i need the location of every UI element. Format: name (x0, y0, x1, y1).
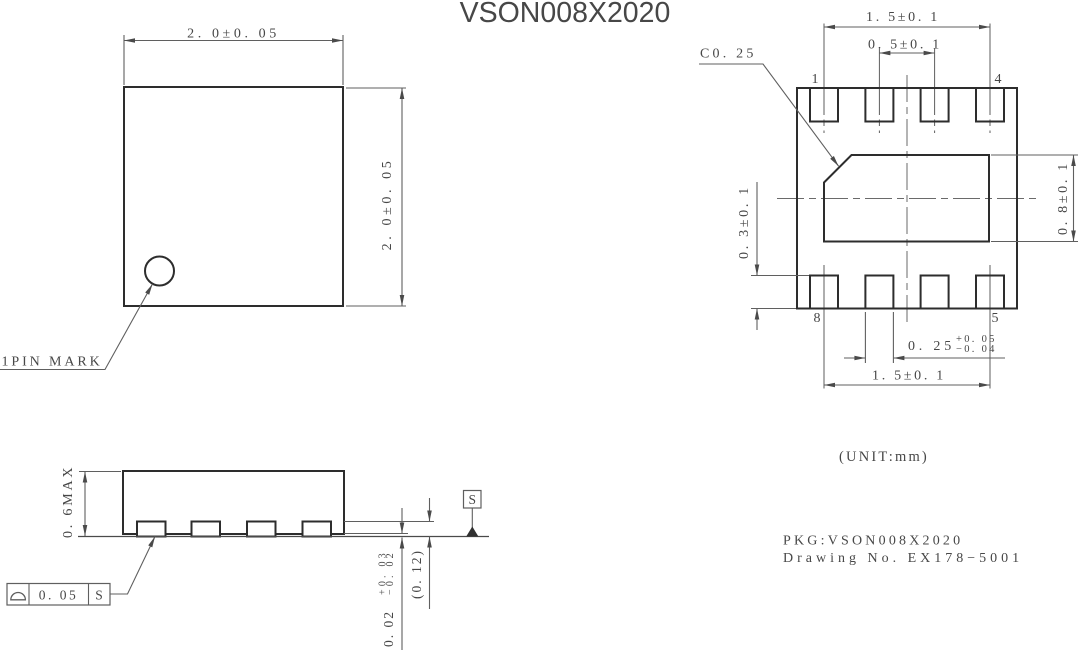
svg-text:2. 0±0. 05: 2. 0±0. 05 (187, 27, 280, 42)
svg-text:8: 8 (814, 311, 821, 326)
svg-text:−0. 02: −0. 02 (385, 550, 396, 595)
svg-text:0. 05: 0. 05 (39, 588, 79, 603)
svg-text:0. 8±0. 1: 0. 8±0. 1 (1056, 161, 1071, 235)
svg-text:C0. 25: C0. 25 (700, 47, 757, 62)
svg-text:0. 3±0. 1: 0. 3±0. 1 (737, 185, 752, 259)
svg-text:1. 5±0. 1: 1. 5±0. 1 (866, 10, 940, 25)
svg-text:S: S (95, 588, 103, 603)
svg-text:−0. 04: −0. 04 (956, 344, 997, 355)
svg-text:5: 5 (992, 311, 999, 326)
svg-text:S: S (469, 492, 477, 507)
svg-text:Drawing No. EX178−5001: Drawing No. EX178−5001 (783, 551, 1023, 566)
svg-text:VSON008X2020: VSON008X2020 (460, 0, 671, 29)
svg-text:0. 25: 0. 25 (908, 339, 955, 354)
svg-text:1PIN MARK: 1PIN MARK (2, 355, 103, 370)
svg-text:0. 02: 0. 02 (381, 610, 396, 647)
svg-text:0. 6MAX: 0. 6MAX (61, 465, 76, 538)
svg-text:(0. 12): (0. 12) (409, 549, 424, 599)
svg-text:1: 1 (812, 72, 819, 87)
svg-text:PKG:VSON008X2020: PKG:VSON008X2020 (783, 534, 963, 549)
svg-text:0. 5±0. 1: 0. 5±0. 1 (868, 38, 942, 53)
svg-text:1. 5±0. 1: 1. 5±0. 1 (872, 369, 946, 384)
svg-text:2. 0±0. 05: 2. 0±0. 05 (380, 158, 395, 251)
svg-text:4: 4 (995, 72, 1002, 87)
svg-text:(UNIT:mm): (UNIT:mm) (839, 449, 929, 465)
